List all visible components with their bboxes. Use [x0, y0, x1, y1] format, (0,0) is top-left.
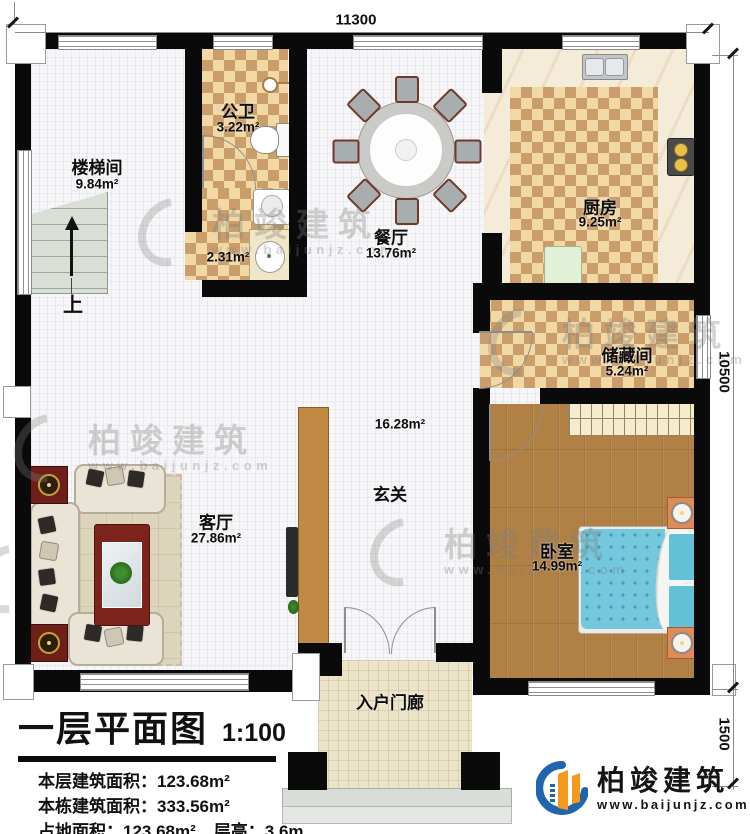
stat-label: 本栋建筑面积：: [38, 797, 157, 816]
title-row: 一层平面图 1:100: [18, 700, 304, 752]
wall-kitchen-storage: [473, 283, 694, 300]
porch-column: [461, 752, 500, 790]
door-leaf: [479, 331, 532, 333]
dim-height: 10500: [716, 351, 733, 393]
dim-ext-line: [712, 55, 738, 56]
plan-stats: 本层建筑面积：123.68m² 本栋建筑面积：333.56m² 占地面积：123…: [18, 769, 304, 834]
window: [213, 35, 273, 50]
tv-wall: [298, 407, 329, 645]
window: [58, 35, 157, 50]
room-area-storage: 5.24m²: [606, 364, 649, 379]
stat-value: 333.56m²: [157, 797, 230, 816]
sofa-pillow: [126, 469, 146, 489]
brand-logo-icon: [536, 760, 588, 818]
room-area-stairwell: 9.84m²: [76, 177, 119, 192]
brand-logo: 柏竣建筑 www.baijunjz.com: [536, 760, 749, 818]
dim-corner-box: [292, 653, 320, 701]
sofa-pillow: [84, 467, 105, 488]
dining-chair: [455, 140, 482, 164]
lamp-icon: [671, 632, 693, 654]
door-leaf: [344, 607, 346, 653]
washing-machine-drum: [261, 195, 283, 217]
lamp-icon: [38, 474, 60, 496]
lamp-icon: [671, 502, 693, 524]
door-leaf: [434, 607, 436, 653]
room-area-kitchen: 9.25m²: [579, 215, 622, 230]
nightstand: [667, 497, 697, 529]
dim-corner-box: [3, 386, 31, 418]
sofa-pillow: [36, 514, 57, 535]
brand-name: 柏竣建筑: [597, 766, 749, 797]
basin-drain: [267, 254, 271, 258]
brand-url: www.baijunjz.com: [597, 797, 749, 813]
title-underline: [18, 756, 276, 762]
window: [696, 315, 711, 379]
stat-label: 本层建筑面积：: [38, 772, 157, 791]
door-leaf: [489, 404, 491, 460]
wall-bath-dining: [289, 49, 307, 297]
plan-scale: 1:100: [222, 719, 286, 748]
window: [80, 673, 249, 691]
page-title: 一层平面图: [18, 700, 208, 752]
porch-step: [282, 806, 512, 824]
towel-ring-arm: [276, 82, 290, 84]
wall-porch-right: [436, 643, 480, 662]
plant-icon: [288, 600, 299, 614]
bed-blanket: [581, 529, 665, 629]
room-area-bath-lobby: 2.31m²: [207, 250, 250, 265]
sofa-pillow: [125, 623, 145, 643]
brand-logo-text: 柏竣建筑 www.baijunjz.com: [597, 766, 749, 812]
plant-icon: [110, 562, 132, 584]
wall-stair-bath: [185, 49, 202, 232]
wall-storage-bedroom: [473, 388, 490, 404]
fridge: [544, 246, 582, 288]
stat-value: 123.68m²: [157, 772, 230, 791]
window: [562, 35, 640, 50]
dining-chair: [395, 76, 419, 103]
window: [528, 681, 655, 696]
stat-value: 3.6m: [265, 822, 304, 834]
dim-ext-line: [712, 689, 738, 690]
kitchen-rug: [510, 87, 658, 283]
floor-plan-canvas: 11300 10500 1500 楼梯间 9.84m² 公卫 3.22m² 2.…: [0, 0, 750, 834]
porch-step: [282, 788, 512, 808]
wall-storage-bedroom: [540, 388, 694, 404]
window: [17, 150, 32, 295]
stat-label: 层高：: [214, 822, 265, 834]
stat-line: 占地面积：123.68m²层高：3.6m: [38, 819, 304, 834]
stairs-arrow-head: [65, 216, 79, 230]
stairs-up-label: 上: [63, 289, 83, 318]
dim-porch-depth: 1500: [716, 717, 733, 750]
room-area-bath: 3.22m²: [217, 120, 260, 135]
dim-corner-box: [6, 24, 46, 64]
room-area-bedroom: 14.99m²: [532, 559, 582, 574]
sofa-pillow: [39, 541, 60, 562]
room-label-foyer: 玄关: [373, 481, 407, 506]
wall-bath-south: [202, 280, 307, 297]
wall-storage-west: [473, 300, 490, 333]
tv: [286, 527, 298, 597]
nightstand: [667, 627, 697, 659]
porch-floor: [318, 660, 472, 788]
stat-value: 123.68m²: [123, 822, 196, 834]
dim-line-top: [15, 32, 709, 33]
dim-width: 11300: [336, 12, 377, 29]
dining-chair: [395, 198, 419, 225]
dining-table-center: [395, 139, 417, 161]
bed-pillow: [667, 532, 697, 582]
room-label-stairwell: 楼梯间: [72, 154, 123, 179]
room-area-living: 27.86m²: [191, 531, 241, 546]
door-leaf: [202, 135, 204, 188]
stairs-arrow-shaft: [70, 228, 73, 276]
burner-icon: [674, 158, 688, 172]
wall-dining-kitchen-n: [482, 49, 502, 93]
stat-label: 占地面积：: [38, 822, 123, 834]
title-block: 一层平面图 1:100 本层建筑面积：123.68m² 本栋建筑面积：333.5…: [18, 700, 304, 834]
towel-ring-icon: [262, 77, 278, 93]
stat-line: 本栋建筑面积：333.56m²: [38, 794, 304, 819]
dining-chair: [333, 140, 360, 164]
burner-icon: [674, 143, 688, 157]
room-area-foyer: 16.28m²: [375, 417, 425, 432]
wardrobe: [568, 403, 696, 436]
end-table: [30, 466, 68, 504]
window: [353, 35, 483, 50]
sink-bowl: [605, 58, 624, 76]
room-area-dining: 13.76m²: [366, 246, 416, 261]
lamp-icon: [38, 632, 60, 654]
dim-line-right: [733, 52, 734, 790]
sink-bowl: [585, 58, 604, 76]
sofa-pillow: [38, 592, 59, 613]
sofa-pillow: [103, 626, 124, 647]
dim-corner-box: [3, 664, 34, 700]
sofa-pillow: [105, 466, 126, 487]
stat-line: 本层建筑面积：123.68m²: [38, 769, 304, 794]
end-table: [30, 624, 68, 662]
room-label-porch: 入户门廊: [356, 689, 424, 714]
